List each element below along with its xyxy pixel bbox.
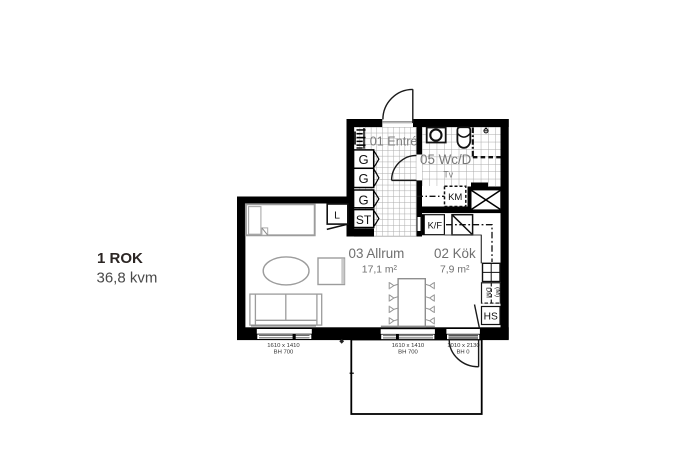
svg-text:ST: ST	[356, 213, 372, 227]
svg-text:01 Entré: 01 Entré	[370, 135, 418, 149]
svg-text:1610 x 1410: 1610 x 1410	[392, 343, 425, 349]
svg-text:03 Allrum: 03 Allrum	[349, 246, 405, 261]
svg-text:K/F: K/F	[428, 221, 443, 231]
svg-text:BH 700: BH 700	[274, 349, 294, 355]
svg-text:G: G	[359, 152, 369, 167]
svg-text:7,9 m²: 7,9 m²	[440, 265, 470, 276]
svg-text:KM: KM	[448, 192, 462, 203]
svg-text:BH 0: BH 0	[456, 349, 470, 355]
svg-text:Tv: Tv	[443, 169, 453, 179]
svg-text:G: G	[359, 171, 369, 186]
svg-text:36,8 kvm: 36,8 kvm	[97, 270, 158, 287]
svg-text:1610 x 1410: 1610 x 1410	[267, 343, 300, 349]
svg-text:DM: DM	[485, 287, 492, 298]
svg-text:HS: HS	[484, 312, 498, 323]
svg-text:1010 x 2130: 1010 x 2130	[447, 343, 480, 349]
svg-text:05 Wc/D: 05 Wc/D	[420, 152, 472, 167]
svg-text:G: G	[359, 192, 369, 207]
svg-text:L: L	[334, 209, 340, 221]
svg-text:02 Kök: 02 Kök	[434, 246, 476, 261]
svg-text:(M): (M)	[494, 287, 501, 297]
svg-text:1 ROK: 1 ROK	[97, 250, 143, 267]
svg-text:BH 700: BH 700	[398, 349, 418, 355]
svg-text:17,1 m²: 17,1 m²	[362, 265, 398, 276]
